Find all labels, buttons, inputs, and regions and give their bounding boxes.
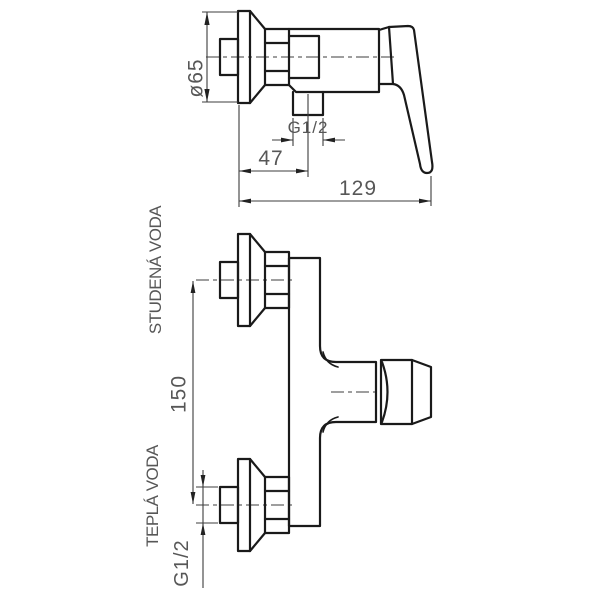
label-hot-water: TEPLÁ VODA (143, 444, 162, 547)
arrow-down-icon (191, 492, 196, 504)
dim-outlet-thread-label: G1/2 (288, 118, 329, 137)
label-cold-water: STUDENÁ VODA (146, 205, 165, 334)
dim-inlet-thread: G1/2 (171, 470, 218, 588)
side-view: ø65 G1/2 47 129 (184, 11, 432, 207)
arrow-up-icon (204, 12, 209, 25)
handle-knob-front (381, 360, 431, 424)
dim-flange-diameter-label: ø65 (184, 58, 207, 97)
lever-blade-edge (389, 27, 393, 84)
dim-connection-spacing-label: 150 (167, 375, 190, 413)
arrow-right-icon (419, 199, 431, 204)
dim-total-depth-label: 129 (339, 177, 377, 200)
lever-blade-front (382, 362, 388, 422)
dim-inlet-thread-label: G1/2 (171, 539, 193, 586)
arrow-up-icon (201, 523, 206, 535)
drawing-canvas: ø65 G1/2 47 129 (0, 0, 600, 600)
arrow-up-icon (191, 281, 196, 293)
arrow-left-icon (239, 169, 251, 174)
dim-connection-spacing: 150 (167, 281, 195, 504)
arrow-right-icon (281, 138, 293, 143)
lever-hub-edge (379, 27, 389, 30)
arrow-down-icon (201, 475, 206, 487)
arrow-left-icon (239, 199, 251, 204)
arrow-left-icon (323, 138, 335, 143)
dim-total-depth: 129 (239, 176, 431, 206)
lever-handle-side (379, 26, 432, 173)
front-view: 150 G1/2 STUDENÁ VODA TEPLÁ VODA (143, 205, 431, 588)
dim-wall-to-outlet-label: 47 (258, 147, 283, 170)
mixer-body-side (289, 29, 379, 92)
mixer-technical-drawing: ø65 G1/2 47 129 (0, 0, 600, 600)
arrow-right-icon (296, 169, 308, 174)
